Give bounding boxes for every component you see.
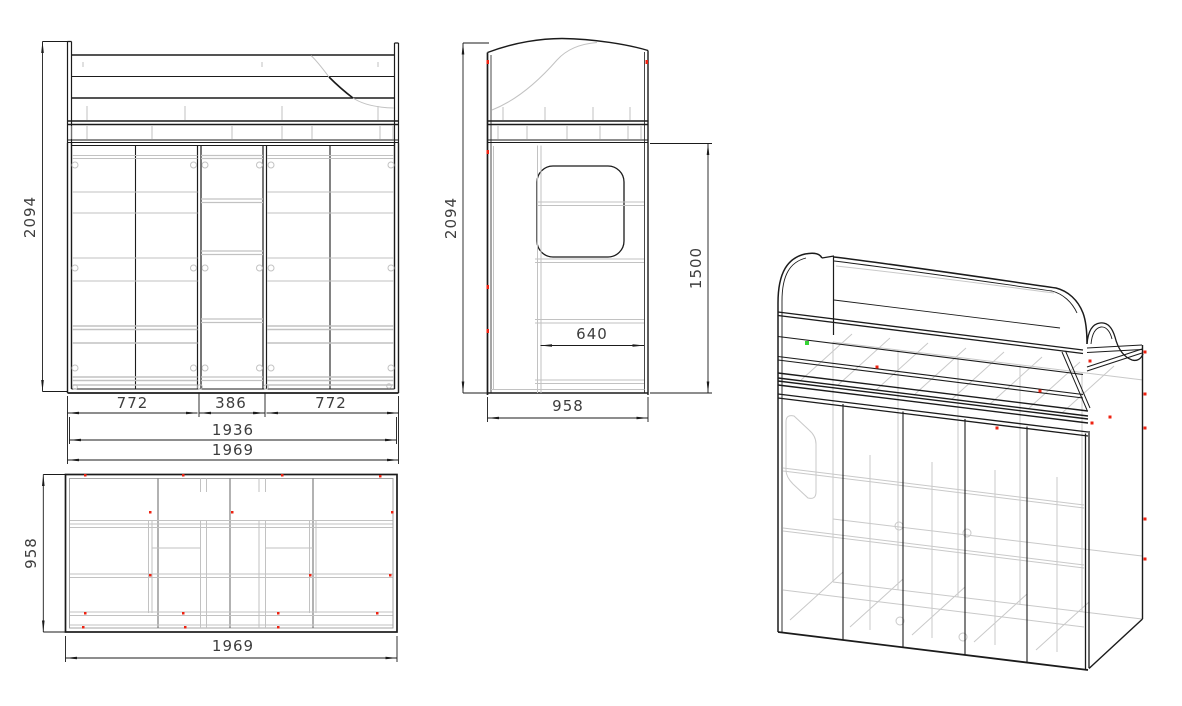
side-height-label: 2094	[442, 197, 460, 239]
front-wardrobe-carcass	[68, 143, 399, 393]
top-view: 958 1969	[22, 474, 397, 662]
isometric-view	[778, 253, 1147, 670]
front-section-width-middle-label: 386	[215, 394, 247, 412]
side-depth-label: 958	[552, 397, 584, 415]
top-dimension-lines	[43, 475, 397, 663]
top-width-label: 1969	[212, 637, 254, 655]
front-inner-width-label: 1936	[212, 421, 254, 439]
side-view: 2094 1500 640 958	[442, 39, 712, 423]
front-bed-frame	[68, 42, 399, 144]
side-hidden-lines	[491, 43, 645, 394]
side-dimension-lines	[463, 43, 712, 422]
top-depth-label: 958	[22, 537, 40, 569]
front-section-width-right-label: 772	[315, 394, 347, 412]
top-outer-rect	[66, 475, 398, 633]
side-opening-width-label: 640	[576, 325, 608, 343]
front-shelves-hidden	[72, 156, 394, 386]
top-hidden-lines	[70, 479, 393, 629]
technical-drawing-canvas: 2094 772 386 772 1936 1969	[0, 0, 1182, 706]
drawing-sheet: 2094 772 386 772 1936 1969	[0, 0, 1182, 706]
iso-highlight-mark	[805, 341, 809, 345]
side-clearance-height-label: 1500	[687, 247, 705, 289]
front-view: 2094 772 386 772 1936 1969	[21, 42, 399, 465]
top-fastener-marks	[82, 474, 394, 629]
top-partitions	[158, 479, 313, 629]
side-outline	[488, 39, 649, 396]
front-section-width-left-label: 772	[117, 394, 149, 412]
top-inner-rect	[70, 479, 394, 629]
front-overall-width-label: 1969	[212, 441, 254, 459]
front-bed-hidden-lines	[72, 56, 394, 140]
front-hinge-marks	[72, 162, 394, 389]
front-height-label: 2094	[21, 196, 39, 238]
